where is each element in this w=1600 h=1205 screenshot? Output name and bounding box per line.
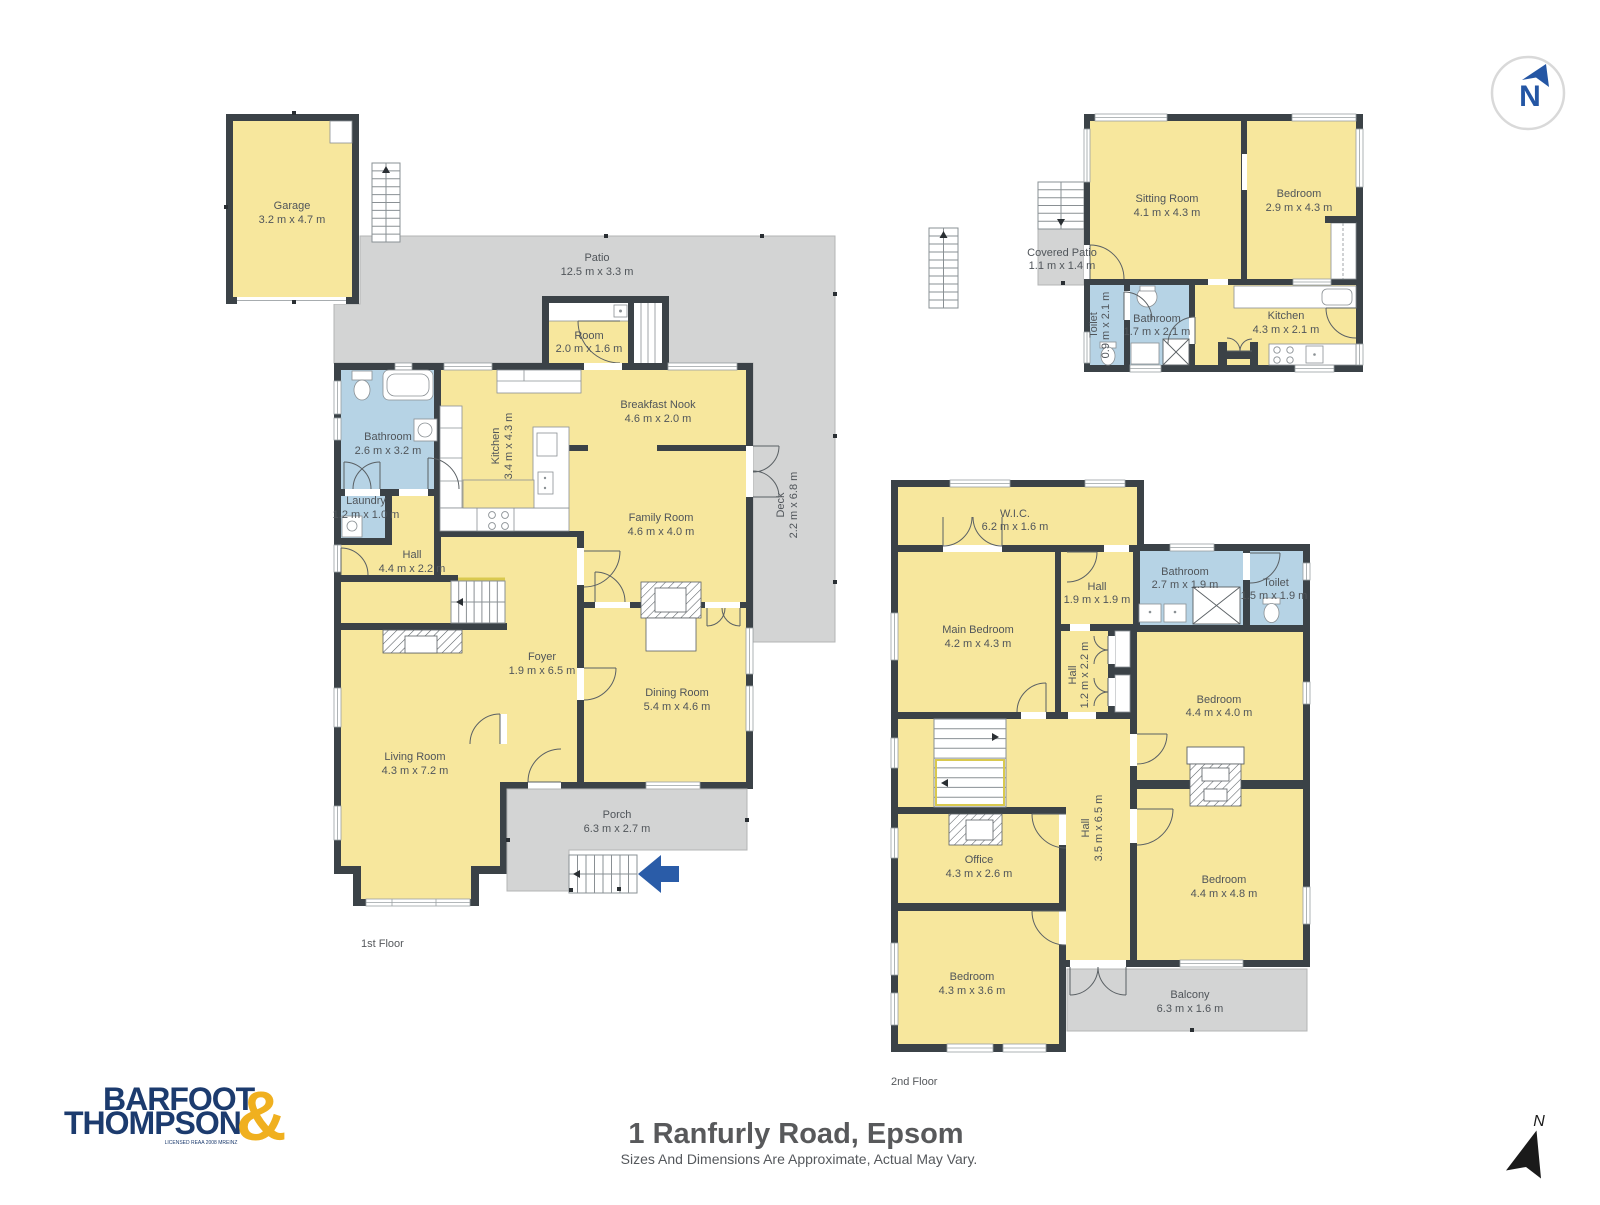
svg-text:Porch: Porch <box>603 809 632 821</box>
svg-text:Sizes And Dimensions Are Appro: Sizes And Dimensions Are Approximate, Ac… <box>621 1151 978 1167</box>
svg-text:Kitchen: Kitchen <box>1268 310 1305 322</box>
svg-text:Toilet: Toilet <box>1088 312 1100 338</box>
svg-text:Patio: Patio <box>584 252 609 264</box>
svg-text:Living Room: Living Room <box>384 751 445 763</box>
svg-text:2.9 m x 4.3 m: 2.9 m x 4.3 m <box>1266 202 1333 214</box>
svg-text:THOMPSON: THOMPSON <box>64 1105 241 1141</box>
svg-text:Laundry: Laundry <box>346 495 386 507</box>
svg-text:2.2 m x 6.8 m: 2.2 m x 6.8 m <box>788 472 800 539</box>
svg-text:12.5 m x 3.3 m: 12.5 m x 3.3 m <box>561 266 634 278</box>
svg-text:Garage: Garage <box>274 200 311 212</box>
svg-text:4.3 m x 2.1 m: 4.3 m x 2.1 m <box>1253 324 1320 336</box>
svg-text:2.6 m x 3.2 m: 2.6 m x 3.2 m <box>355 445 422 457</box>
svg-text:Deck: Deck <box>775 492 787 518</box>
svg-text:4.2 m x 4.3 m: 4.2 m x 4.3 m <box>945 638 1012 650</box>
svg-text:W.I.C.: W.I.C. <box>1000 508 1030 520</box>
svg-text:Main Bedroom: Main Bedroom <box>942 624 1014 636</box>
svg-text:Breakfast Nook: Breakfast Nook <box>620 399 696 411</box>
svg-text:Room: Room <box>574 330 603 342</box>
svg-text:Sitting Room: Sitting Room <box>1136 193 1199 205</box>
svg-text:Toilet: Toilet <box>1263 577 1289 589</box>
svg-text:4.4 m x 4.8 m: 4.4 m x 4.8 m <box>1191 888 1258 900</box>
svg-text:4.1 m x 4.3 m: 4.1 m x 4.3 m <box>1134 207 1201 219</box>
svg-text:1st Floor: 1st Floor <box>361 938 404 950</box>
svg-text:6.3 m x 1.6 m: 6.3 m x 1.6 m <box>1157 1003 1224 1015</box>
svg-text:Hall: Hall <box>1067 666 1079 685</box>
svg-text:Balcony: Balcony <box>1170 989 1210 1001</box>
svg-text:1 Ranfurly Road, Epsom: 1 Ranfurly Road, Epsom <box>628 1118 963 1150</box>
svg-text:4.4 m x 2.2 m: 4.4 m x 2.2 m <box>379 563 446 575</box>
svg-text:Covered Patio: Covered Patio <box>1027 247 1097 259</box>
svg-text:0.9 m x 2.1 m: 0.9 m x 2.1 m <box>1100 292 1112 359</box>
svg-text:6.3 m x 2.7 m: 6.3 m x 2.7 m <box>584 823 651 835</box>
svg-text:Bathroom: Bathroom <box>1133 313 1181 325</box>
svg-text:1.5 m x 1.9 m: 1.5 m x 1.9 m <box>1241 590 1308 602</box>
svg-text:Foyer: Foyer <box>528 651 556 663</box>
svg-text:LICENSED REAA 2008 MREINZ: LICENSED REAA 2008 MREINZ <box>165 1140 238 1146</box>
svg-text:Hall: Hall <box>403 549 422 561</box>
svg-text:1.2 m x 1.0 m: 1.2 m x 1.0 m <box>333 509 400 521</box>
svg-text:1.9 m x 1.9 m: 1.9 m x 1.9 m <box>1064 594 1131 606</box>
svg-text:Office: Office <box>965 854 994 866</box>
svg-text:Bathroom: Bathroom <box>364 431 412 443</box>
svg-text:4.3 m x 3.6 m: 4.3 m x 3.6 m <box>939 985 1006 997</box>
svg-text:5.4 m x 4.6 m: 5.4 m x 4.6 m <box>644 701 711 713</box>
svg-text:3.4 m x 4.3 m: 3.4 m x 4.3 m <box>503 413 515 480</box>
svg-text:1.1 m x 1.4 m: 1.1 m x 1.4 m <box>1029 260 1096 272</box>
svg-text:4.6 m x 4.0 m: 4.6 m x 4.0 m <box>628 526 695 538</box>
svg-text:2.7 m x 1.9 m: 2.7 m x 1.9 m <box>1152 579 1219 591</box>
svg-text:Kitchen: Kitchen <box>490 428 502 465</box>
svg-text:Bedroom: Bedroom <box>1202 874 1247 886</box>
svg-text:Bathroom: Bathroom <box>1161 566 1209 578</box>
svg-text:Hall: Hall <box>1088 581 1107 593</box>
svg-text:Bedroom: Bedroom <box>950 971 995 983</box>
svg-text:4.4 m x 4.0 m: 4.4 m x 4.0 m <box>1186 707 1253 719</box>
svg-text:3.5 m x 6.5 m: 3.5 m x 6.5 m <box>1093 795 1105 862</box>
svg-text:6.2 m x 1.6 m: 6.2 m x 1.6 m <box>982 521 1049 533</box>
svg-text:&: & <box>236 1077 287 1155</box>
svg-text:Bedroom: Bedroom <box>1277 188 1322 200</box>
svg-text:Hall: Hall <box>1080 819 1092 838</box>
svg-text:Bedroom: Bedroom <box>1197 694 1242 706</box>
svg-text:N: N <box>1519 80 1541 113</box>
svg-text:Dining Room: Dining Room <box>645 687 709 699</box>
svg-text:N: N <box>1533 1113 1545 1130</box>
svg-text:2nd Floor: 2nd Floor <box>891 1076 938 1088</box>
svg-text:4.6 m x 2.0 m: 4.6 m x 2.0 m <box>625 413 692 425</box>
svg-text:3.2 m x 4.7 m: 3.2 m x 4.7 m <box>259 214 326 226</box>
svg-text:1.2 m x 2.2 m: 1.2 m x 2.2 m <box>1079 642 1091 709</box>
svg-text:4.3 m x 2.6 m: 4.3 m x 2.6 m <box>946 868 1013 880</box>
svg-text:Family Room: Family Room <box>629 512 694 524</box>
svg-text:1.7 m x 2.1 m: 1.7 m x 2.1 m <box>1124 326 1191 338</box>
svg-text:1.9 m x 6.5 m: 1.9 m x 6.5 m <box>509 665 576 677</box>
svg-text:2.0 m x 1.6 m: 2.0 m x 1.6 m <box>556 343 623 355</box>
svg-text:4.3 m x 7.2 m: 4.3 m x 7.2 m <box>382 765 449 777</box>
